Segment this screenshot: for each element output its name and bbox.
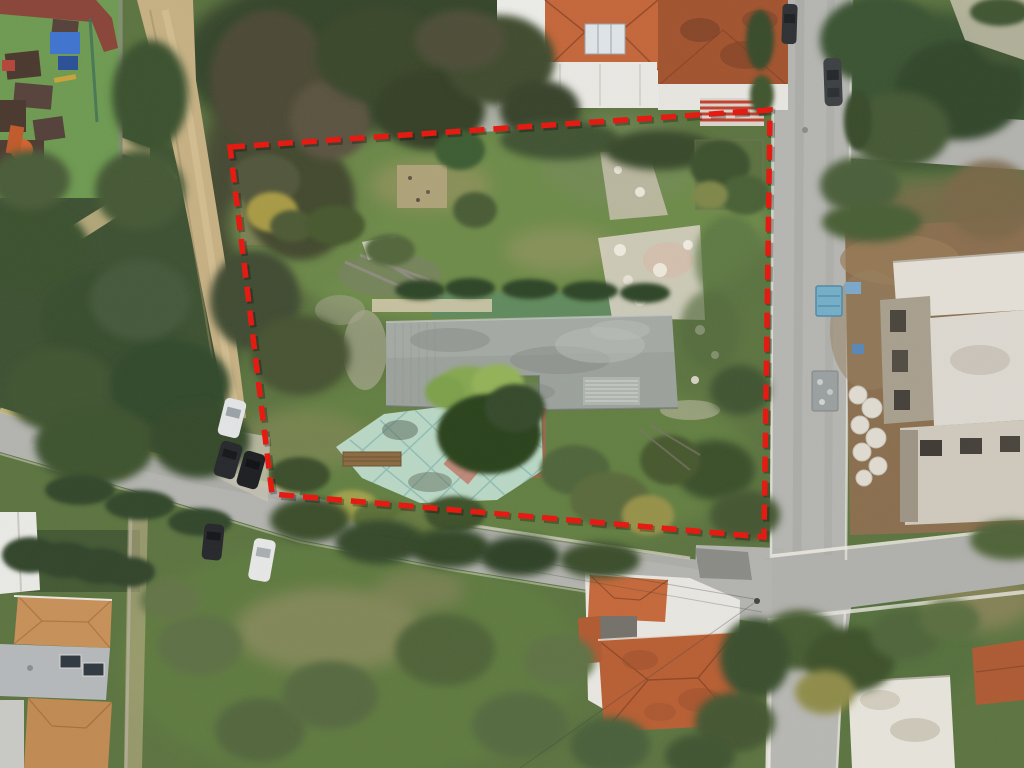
aerial-photo-canvas: Aerial drone photo of a residential land… xyxy=(0,0,1024,768)
aerial-photo: Aerial drone photo of a residential land… xyxy=(0,0,1024,768)
photo-grain-overlay xyxy=(0,0,1024,768)
